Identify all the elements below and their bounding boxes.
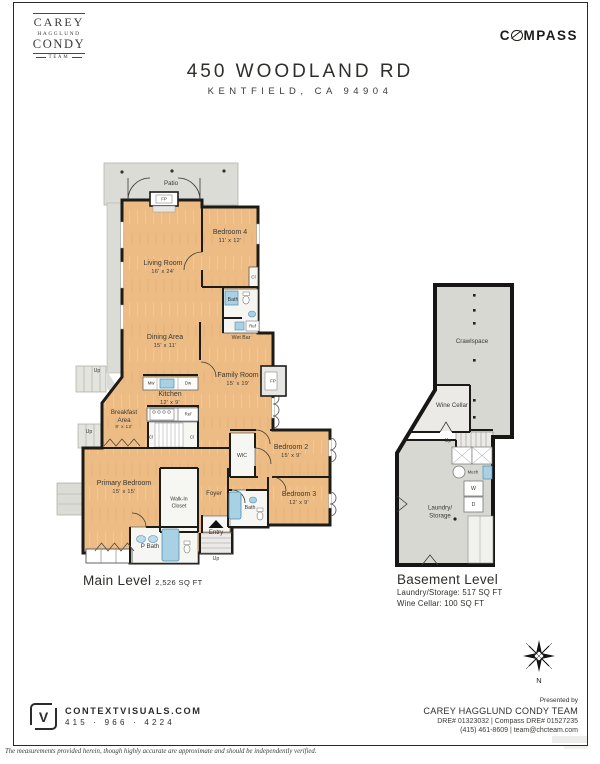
room-label-bedroom3: Bedroom 312' x 9': [282, 491, 316, 507]
logo-rule: [33, 53, 85, 54]
measurement-disclaimer: The measurements provided herein, though…: [5, 748, 317, 755]
compass-logo: C MPASS: [500, 28, 578, 43]
up-label: Up: [86, 429, 93, 436]
up-label: Up: [213, 556, 220, 563]
up-label: Up: [445, 438, 452, 445]
logo-team-label: TEAM: [49, 55, 70, 60]
fireplace-label: FP: [270, 378, 276, 384]
up-label: Up: [94, 368, 101, 375]
room-label-bath-upper: Bath: [228, 297, 239, 304]
main-level-area: 2,526 SQ FT: [155, 578, 202, 587]
presented-by-block: Presented by CAREY HAGGLUND CONDY TEAM D…: [423, 697, 578, 734]
basement-level-caption: Basement Level Laundry/Storage: 517 SQ F…: [397, 572, 502, 610]
page-subtitle: KENTFIELD, CA 94904: [0, 86, 600, 97]
main-level-title: Main Level: [83, 573, 151, 588]
contextvisuals-phone: 415 · 966 · 4224: [65, 718, 202, 727]
logo-team-row: TEAM: [30, 55, 88, 60]
room-label-laundry-storage: Laundry/ Storage: [428, 504, 452, 520]
logo-line3: CONDY: [30, 37, 88, 52]
contextvisuals-logo: V: [30, 703, 57, 730]
room-label-wine-cellar: Wine Cellar: [436, 402, 468, 410]
mech-label: Mech: [468, 469, 479, 475]
room-label-living: Living Room16' x 24': [144, 260, 183, 276]
fireplace-label: FP: [161, 196, 167, 202]
room-label-kitchen: Kitchen12' x 9': [158, 391, 181, 407]
logo-rule: [33, 13, 85, 14]
room-label-entry: Entry: [209, 529, 223, 537]
room-label-bedroom4: Bedroom 411' x 12': [213, 229, 247, 245]
contact-info: (415) 461-8609 | team@chcteam.com: [423, 727, 578, 734]
compass-o-icon: [511, 30, 523, 42]
room-label-wet-bar: Wet Bar: [232, 335, 251, 342]
microwave-label: Mw: [148, 380, 155, 386]
closet-label: Cl: [251, 274, 255, 280]
room-label-bath-lower: Bath: [245, 505, 256, 512]
refrigerator-label: Ref: [249, 323, 256, 329]
refrigerator-label: Ref: [185, 411, 192, 417]
closet-label: Cl: [190, 434, 194, 440]
basement-stat-laundry: Laundry/Storage: 517 SQ FT: [397, 587, 502, 598]
dash-icon: [72, 57, 82, 58]
washer-label: W: [471, 485, 476, 492]
compass-logo-post: MPASS: [523, 28, 578, 43]
dishwasher-label: Dw: [185, 380, 191, 386]
room-label-dining: Dining Area15' x 11': [147, 334, 183, 350]
contextvisuals-credit: V CONTEXTVISUALS.COM 415 · 966 · 4224: [30, 703, 202, 730]
room-label-foyer: Foyer: [206, 490, 222, 498]
compass-logo-pre: C: [500, 28, 511, 43]
closet-label: Cl: [149, 434, 153, 440]
dre-numbers: DRE# 01323032 | Compass DRE# 01527235: [423, 718, 578, 725]
room-label-patio: Patio: [164, 180, 178, 188]
logo-line1: CAREY: [30, 15, 88, 30]
room-label-bedroom2: Bedroom 215' x 9': [274, 444, 308, 460]
contextvisuals-site: CONTEXTVISUALS.COM: [65, 706, 202, 716]
contextvisuals-logo-letter: V: [39, 709, 48, 725]
room-label-primary: Primary Bedroom15' x 15': [97, 480, 151, 496]
dash-icon: [36, 57, 46, 58]
room-label-walkin-closet: Walk-In Closet: [170, 497, 187, 510]
room-label-pbath: P Bath: [141, 543, 159, 551]
presenting-team: CAREY HAGGLUND CONDY TEAM: [423, 706, 578, 716]
presented-by-label: Presented by: [423, 697, 578, 704]
basement-level-title: Basement Level: [397, 572, 502, 587]
team-logo: CAREY HAGGLUND CONDY TEAM: [30, 12, 88, 60]
logo-line2: HAGGLUND: [30, 31, 88, 37]
basement-stat-wine: Wine Cellar: 100 SQ FT: [397, 598, 502, 609]
flyer-page: CAREY HAGGLUND CONDY TEAM C MPASS 450 WO…: [0, 0, 600, 764]
page-title: 450 WOODLAND RD: [0, 61, 600, 83]
room-label-family: Family Room15' x 19': [217, 372, 258, 388]
room-label-wic: WIC: [237, 453, 247, 460]
room-label-crawlspace: Crawlspace: [456, 338, 488, 346]
north-label: N: [536, 676, 541, 685]
room-label-breakfast: Breakfast Area8' x 12': [111, 409, 137, 431]
main-level-caption: Main Level2,526 SQ FT: [83, 572, 203, 590]
dryer-label: D: [472, 501, 476, 508]
